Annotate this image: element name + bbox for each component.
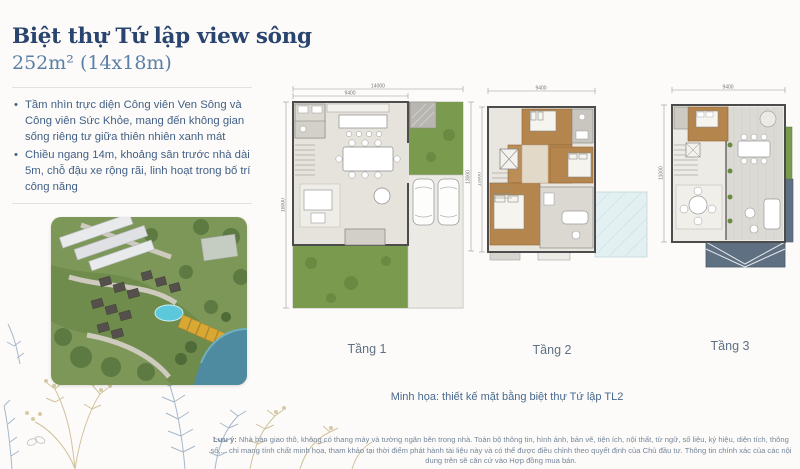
brochure-page: Biệt thự Tứ lập view sông 252m² (14x18m)… (0, 0, 800, 469)
plan-label-3: Tầng 3 (650, 339, 800, 353)
dim-label: 13000 (478, 172, 483, 186)
plan-label-1: Tầng 1 (287, 342, 447, 356)
aerial-render-graphic (51, 217, 247, 385)
plans-caption: Minh họa: thiết kế mặt bằng biệt thự Tứ … (292, 391, 722, 403)
aerial-rendering-image (51, 217, 247, 385)
disclaimer-footnote: Lưu ý: Nhà bàn giao thô, không có thang … (208, 435, 794, 467)
divider-top (12, 87, 252, 88)
feature-text: Tầm nhìn trực diện Công viên Ven Sông và… (25, 99, 244, 143)
divider-bottom (12, 203, 252, 204)
feature-list: • Tầm nhìn trực diện Công viên Ven Sông … (12, 97, 258, 195)
feature-item: • Chiều ngang 14m, khoảng sân trước nhà … (12, 147, 258, 195)
dim-label: 9400 (344, 91, 355, 97)
bullet-icon: • (14, 147, 18, 163)
plan-label-2: Tầng 2 (472, 343, 632, 357)
page-title: Biệt thự Tứ lập view sông (12, 24, 262, 49)
dim-label: 11000 (659, 166, 665, 180)
disclaimer-label: Lưu ý: (213, 435, 237, 444)
area-subtitle: 252m² (14x18m) (12, 52, 262, 74)
info-panel: Biệt thự Tứ lập view sông 252m² (14x18m)… (12, 24, 262, 204)
feature-text: Chiều ngang 14m, khoảng sân trước nhà dà… (25, 149, 250, 193)
floor-plan-3: 9400 11000 (646, 83, 798, 333)
dim-label: 14000 (371, 84, 385, 90)
feature-item: • Tầm nhìn trực diện Công viên Ven Sông … (12, 97, 258, 145)
dim-label: 18000 (281, 198, 287, 212)
disclaimer-text: Nhà bàn giao thô, không có thang máy và … (210, 435, 791, 465)
dim-label: 9400 (535, 86, 546, 92)
floor-plan-2: 9400 13000 (478, 83, 654, 333)
bullet-icon: • (14, 97, 18, 113)
dim-label: 9400 (722, 85, 733, 91)
dim-label: 13000 (466, 170, 472, 184)
floor-plan-1: 14000 9400 18000 13000 (281, 83, 477, 333)
